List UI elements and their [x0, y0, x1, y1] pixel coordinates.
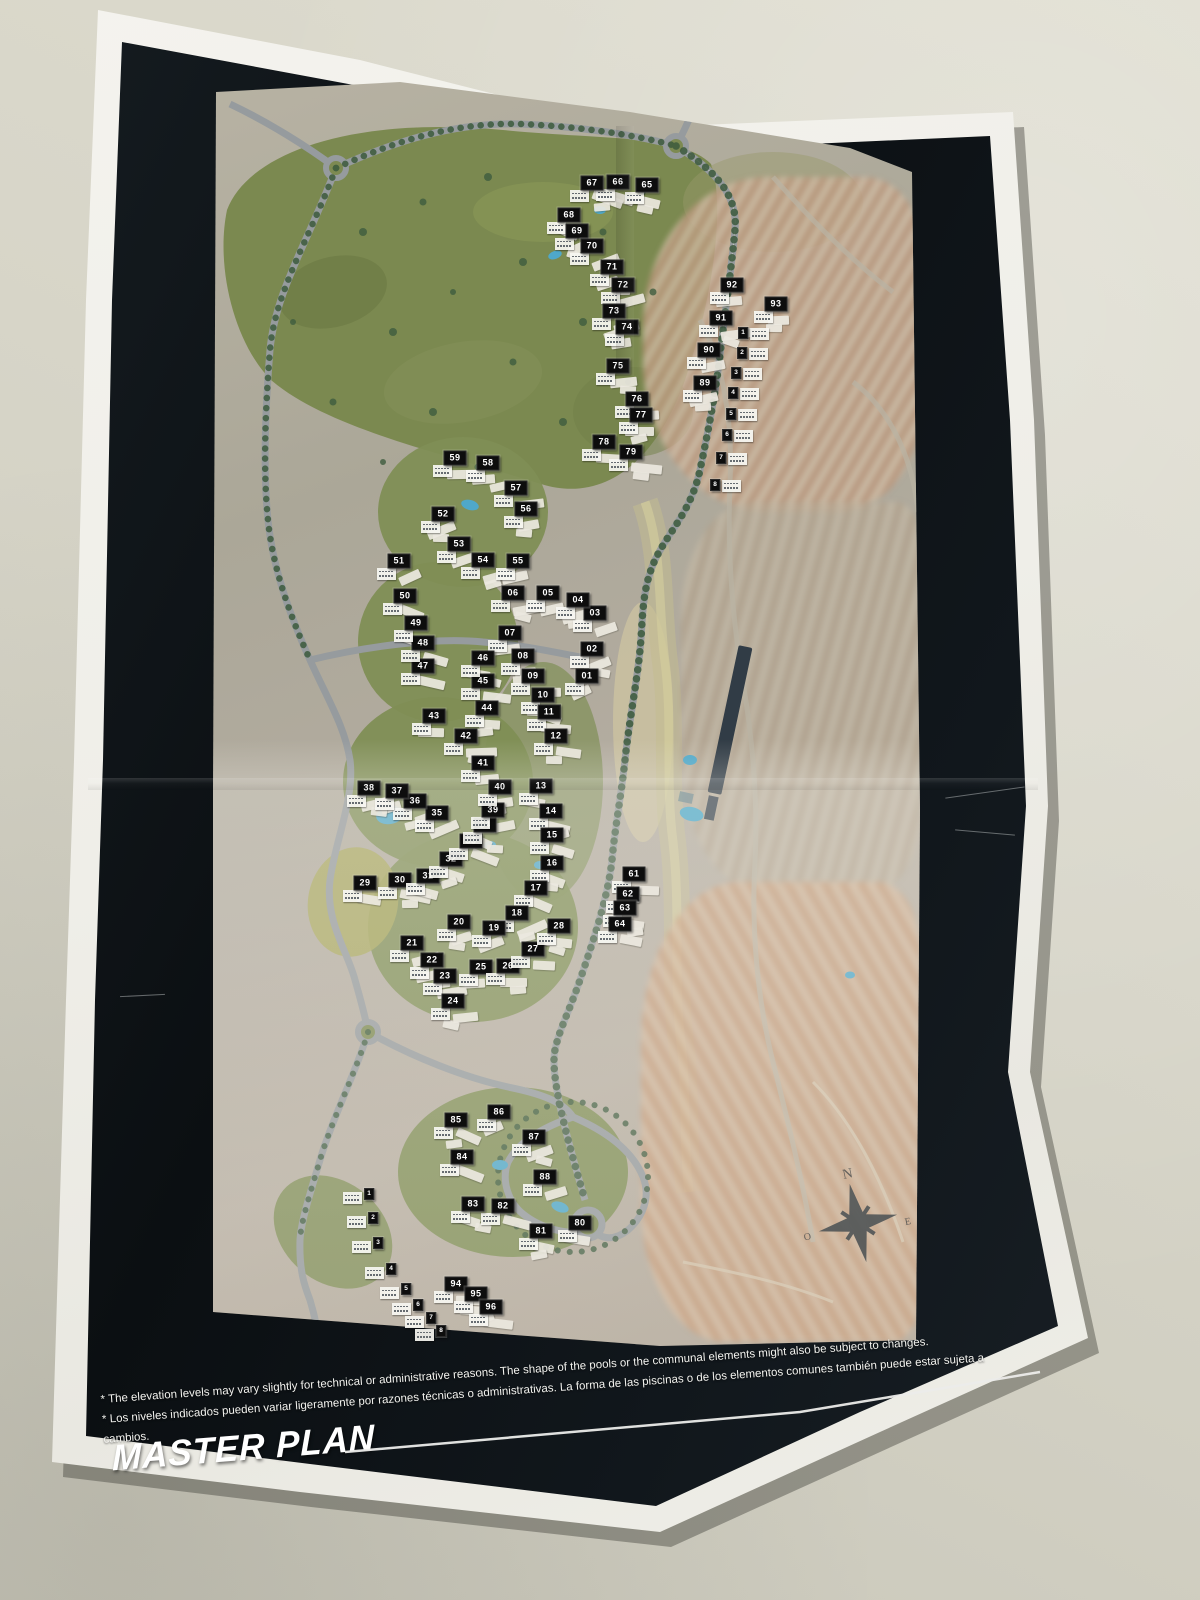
new-roads	[230, 100, 735, 1334]
road-boulevard	[554, 146, 735, 1200]
road-villas	[300, 1032, 368, 1334]
photo-of-poster: N O E 0102030405060708091011121314151617…	[0, 0, 1200, 1600]
masterplan-map: N O E	[213, 82, 920, 1346]
compass-east-label: E	[904, 1216, 912, 1228]
compass-north-label: N	[841, 1166, 854, 1183]
scattered-trees	[290, 173, 657, 471]
roads-layer: N O E	[213, 82, 920, 1346]
dirt-roads	[683, 1082, 903, 1302]
pools	[375, 206, 855, 1215]
road-north	[336, 124, 676, 168]
hotel-building	[674, 640, 752, 827]
